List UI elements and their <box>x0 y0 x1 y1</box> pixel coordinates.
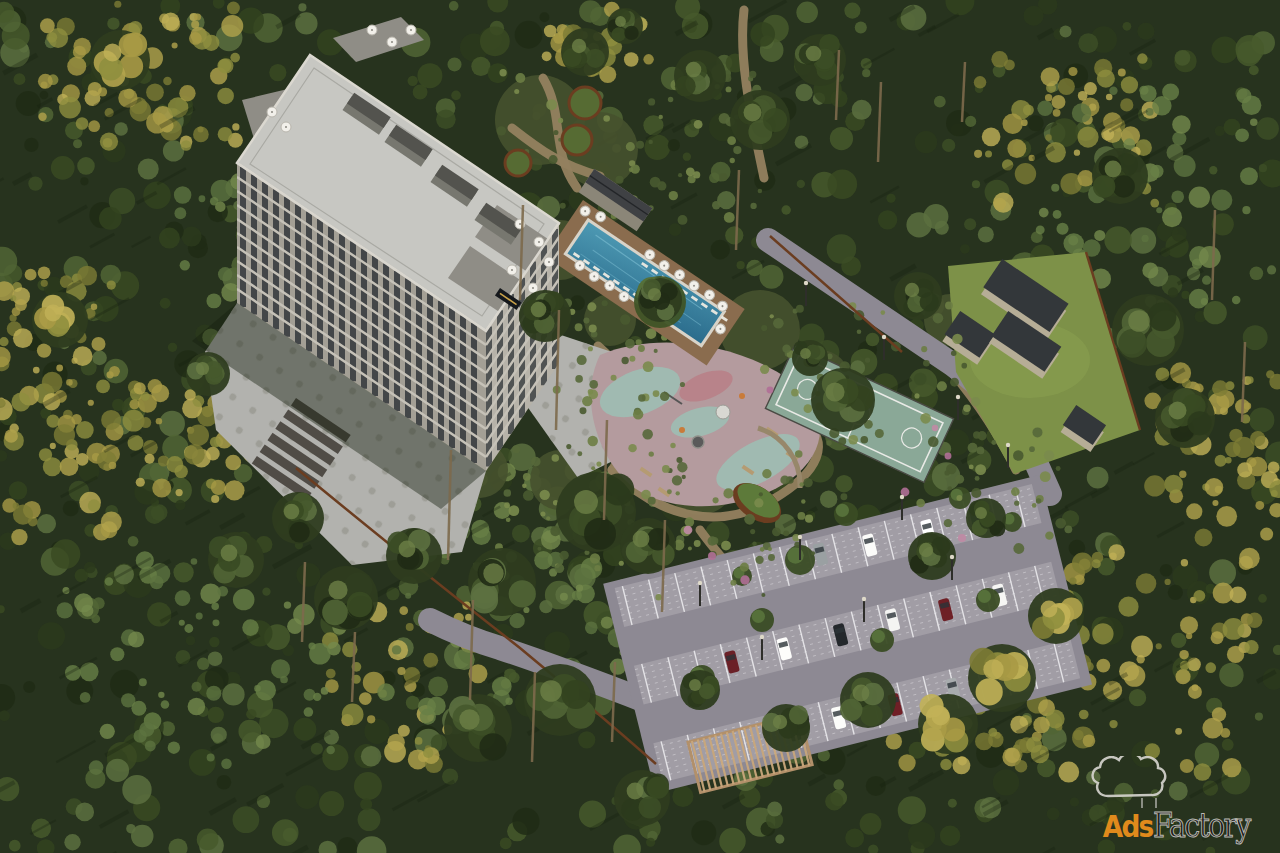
scene-canvas <box>0 0 1280 853</box>
aerial-render-image: AdsFactory <box>0 0 1280 853</box>
